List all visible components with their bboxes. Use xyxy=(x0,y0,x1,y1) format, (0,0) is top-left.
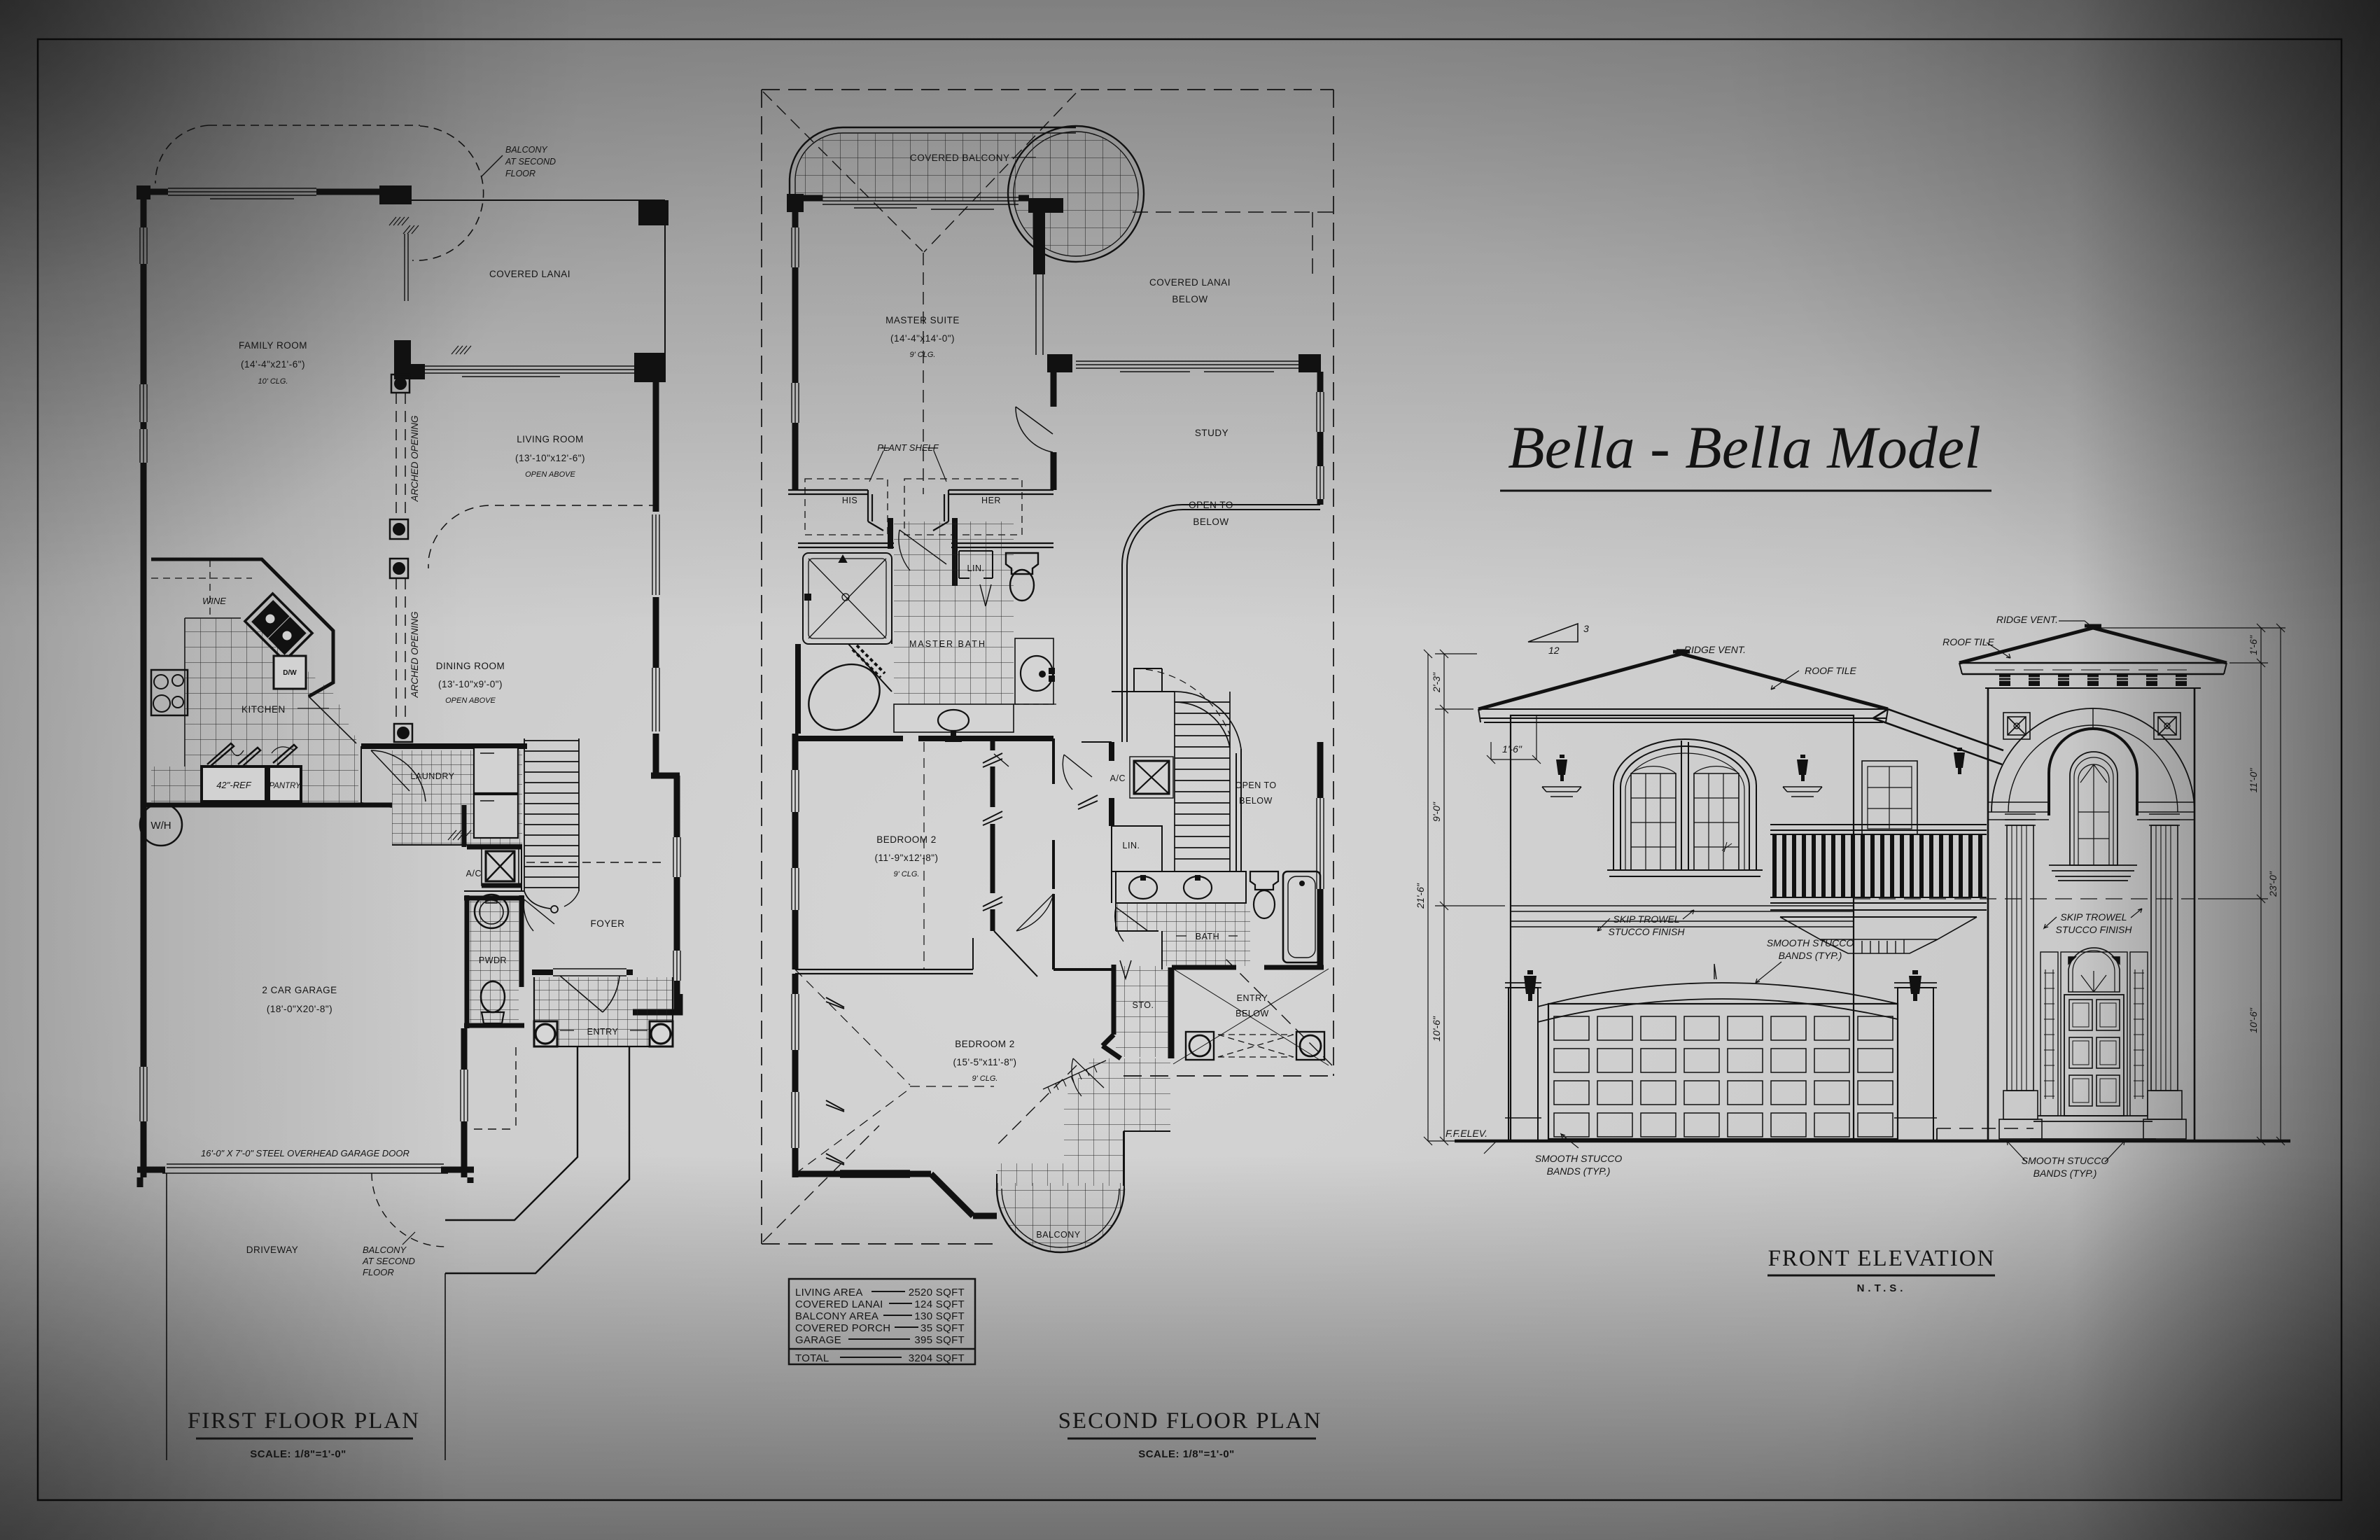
svg-text:F.F.ELEV.: F.F.ELEV. xyxy=(1445,1128,1487,1139)
svg-text:D/W: D/W xyxy=(283,669,297,677)
svg-text:10'-6": 10'-6" xyxy=(1431,1016,1442,1042)
svg-text:10' CLG.: 10' CLG. xyxy=(258,377,288,386)
svg-text:LIVING ROOM: LIVING ROOM xyxy=(517,434,584,444)
svg-text:W/H: W/H xyxy=(150,820,171,832)
svg-text:395 SQFT: 395 SQFT xyxy=(914,1334,965,1346)
svg-text:124 SQFT: 124 SQFT xyxy=(914,1298,965,1310)
svg-text:HIS: HIS xyxy=(842,496,857,505)
svg-text:SMOOTH STUCCO: SMOOTH STUCCO xyxy=(1535,1153,1623,1164)
svg-text:A/C: A/C xyxy=(1110,773,1126,783)
svg-text:FRONT ELEVATION: FRONT ELEVATION xyxy=(1768,1246,1996,1271)
svg-text:OPEN ABOVE: OPEN ABOVE xyxy=(445,696,496,705)
svg-text:SMOOTH STUCCO: SMOOTH STUCCO xyxy=(1767,937,1854,948)
svg-text:(14'-4"x21'-6"): (14'-4"x21'-6") xyxy=(241,359,305,370)
svg-text:BALCONY AREA: BALCONY AREA xyxy=(795,1310,878,1322)
svg-text:Bella - Bella Model: Bella - Bella Model xyxy=(1508,414,1981,481)
svg-text:2'-3": 2'-3" xyxy=(1431,672,1442,693)
svg-text:RIDGE VENT.: RIDGE VENT. xyxy=(1684,644,1746,655)
svg-text:COVERED LANAI: COVERED LANAI xyxy=(795,1298,883,1310)
svg-text:KITCHEN: KITCHEN xyxy=(241,704,286,715)
svg-text:STO.: STO. xyxy=(1133,1000,1154,1010)
svg-text:TOTAL: TOTAL xyxy=(795,1352,829,1364)
svg-text:FLOOR: FLOOR xyxy=(505,169,535,178)
svg-text:BANDS (TYP.): BANDS (TYP.) xyxy=(1547,1165,1611,1177)
svg-text:AT SECOND: AT SECOND xyxy=(362,1256,415,1266)
svg-text:GARAGE: GARAGE xyxy=(795,1334,841,1346)
svg-text:LIVING AREA: LIVING AREA xyxy=(795,1287,863,1298)
svg-text:9'-0": 9'-0" xyxy=(1431,801,1442,822)
svg-text:BALCONY: BALCONY xyxy=(1036,1230,1080,1240)
svg-text:BELOW: BELOW xyxy=(1239,796,1273,806)
svg-text:ENTRY: ENTRY xyxy=(1237,993,1268,1003)
svg-text:35 SQFT: 35 SQFT xyxy=(920,1322,965,1334)
svg-text:STUDY: STUDY xyxy=(1195,428,1228,438)
svg-text:PWDR: PWDR xyxy=(479,955,507,965)
svg-text:2 CAR GARAGE: 2 CAR GARAGE xyxy=(262,985,337,995)
svg-text:42"-REF: 42"-REF xyxy=(216,780,251,790)
svg-text:LIN.: LIN. xyxy=(1123,841,1140,850)
svg-text:130 SQFT: 130 SQFT xyxy=(914,1310,965,1322)
svg-text:SCALE: 1/8"=1'-0": SCALE: 1/8"=1'-0" xyxy=(250,1448,346,1460)
svg-text:(11'-9"x12'-8"): (11'-9"x12'-8") xyxy=(874,853,938,863)
svg-text:10'-6": 10'-6" xyxy=(2248,1007,2259,1033)
svg-text:BALCONY: BALCONY xyxy=(363,1245,407,1255)
svg-text:DINING ROOM: DINING ROOM xyxy=(436,661,505,671)
svg-text:16'-0" X 7'-0" STEEL OVERHEAD: 16'-0" X 7'-0" STEEL OVERHEAD GARAGE DOO… xyxy=(201,1148,409,1158)
svg-text:COVERED LANAI: COVERED LANAI xyxy=(489,269,570,279)
svg-text:OPEN ABOVE: OPEN ABOVE xyxy=(525,470,575,479)
svg-text:AT SECOND: AT SECOND xyxy=(505,157,556,167)
svg-text:SECOND FLOOR PLAN: SECOND FLOOR PLAN xyxy=(1058,1408,1322,1434)
svg-text:ARCHED OPENING: ARCHED OPENING xyxy=(409,611,420,698)
svg-text:BEDROOM 2: BEDROOM 2 xyxy=(955,1039,1015,1049)
svg-text:WINE: WINE xyxy=(202,596,226,606)
svg-text:9' CLG.: 9' CLG. xyxy=(894,870,920,878)
svg-text:SCALE: 1/8"=1'-0": SCALE: 1/8"=1'-0" xyxy=(1138,1448,1235,1460)
svg-text:DRIVEWAY: DRIVEWAY xyxy=(246,1245,299,1255)
svg-text:2520 SQFT: 2520 SQFT xyxy=(909,1287,965,1298)
svg-text:A/C: A/C xyxy=(466,869,482,878)
svg-text:HER: HER xyxy=(981,496,1001,505)
svg-text:BATH: BATH xyxy=(1196,932,1219,941)
svg-text:LAUNDRY: LAUNDRY xyxy=(410,771,454,781)
svg-text:BANDS (TYP.): BANDS (TYP.) xyxy=(1779,950,1842,961)
svg-text:9' CLG.: 9' CLG. xyxy=(910,351,936,359)
svg-text:(15'-5"x11'-8"): (15'-5"x11'-8") xyxy=(953,1057,1016,1067)
svg-text:11'-0": 11'-0" xyxy=(2248,768,2259,793)
svg-text:BELOW: BELOW xyxy=(1193,517,1228,527)
svg-text:FLOOR: FLOOR xyxy=(363,1267,394,1277)
svg-text:BELOW: BELOW xyxy=(1172,294,1207,304)
svg-text:ROOF TILE: ROOF TILE xyxy=(1805,665,1856,676)
svg-text:(13'-10"x9'-0"): (13'-10"x9'-0") xyxy=(438,679,503,689)
svg-text:BANDS (TYP.): BANDS (TYP.) xyxy=(2033,1168,2097,1179)
svg-text:COVERED PORCH: COVERED PORCH xyxy=(795,1322,890,1334)
svg-text:1'-6": 1'-6" xyxy=(2248,635,2259,655)
svg-text:MASTER BATH: MASTER BATH xyxy=(909,639,986,649)
svg-text:COVERED BALCONY: COVERED BALCONY xyxy=(910,153,1010,163)
svg-text:9' CLG.: 9' CLG. xyxy=(972,1074,998,1083)
svg-text:SMOOTH STUCCO: SMOOTH STUCCO xyxy=(2022,1155,2109,1166)
svg-text:12: 12 xyxy=(1548,645,1560,656)
svg-text:OPEN TO: OPEN TO xyxy=(1189,500,1233,510)
svg-text:SKIP TROWEL: SKIP TROWEL xyxy=(1613,913,1679,925)
svg-text:N.T.S.: N.T.S. xyxy=(1857,1282,1907,1294)
svg-text:LIN.: LIN. xyxy=(967,563,985,573)
svg-text:BEDROOM 2: BEDROOM 2 xyxy=(876,834,937,845)
svg-text:(14'-4"x14'-0"): (14'-4"x14'-0") xyxy=(890,333,955,344)
svg-text:STUCCO FINISH: STUCCO FINISH xyxy=(1609,926,1686,937)
svg-text:(13'-10"x12'-6"): (13'-10"x12'-6") xyxy=(515,453,585,463)
svg-text:ROOF TILE: ROOF TILE xyxy=(1942,636,1994,647)
svg-text:STUCCO FINISH: STUCCO FINISH xyxy=(2056,924,2133,935)
svg-text:3204 SQFT: 3204 SQFT xyxy=(909,1352,965,1364)
svg-text:FAMILY ROOM: FAMILY ROOM xyxy=(239,340,307,351)
svg-text:BALCONY: BALCONY xyxy=(505,145,548,155)
svg-text:FOYER: FOYER xyxy=(590,918,624,929)
svg-text:PANTRY: PANTRY xyxy=(269,782,302,790)
svg-text:SKIP TROWEL: SKIP TROWEL xyxy=(2060,911,2127,923)
svg-text:RIDGE VENT.: RIDGE VENT. xyxy=(1996,614,2058,625)
svg-text:23'-0": 23'-0" xyxy=(2267,871,2278,897)
svg-text:MASTER SUITE: MASTER SUITE xyxy=(885,315,960,325)
svg-text:FIRST FLOOR PLAN: FIRST FLOOR PLAN xyxy=(188,1408,420,1434)
svg-text:3: 3 xyxy=(1583,623,1589,634)
svg-text:ENTRY: ENTRY xyxy=(587,1027,619,1037)
svg-text:COVERED LANAI: COVERED LANAI xyxy=(1149,277,1231,288)
svg-text:21'-6": 21'-6" xyxy=(1415,883,1426,909)
svg-text:ARCHED OPENING: ARCHED OPENING xyxy=(409,415,420,502)
svg-text:BELOW: BELOW xyxy=(1235,1009,1269,1018)
svg-text:1'-6": 1'-6" xyxy=(1502,743,1522,755)
svg-text:(18'-0"X20'-8"): (18'-0"X20'-8") xyxy=(267,1004,332,1014)
